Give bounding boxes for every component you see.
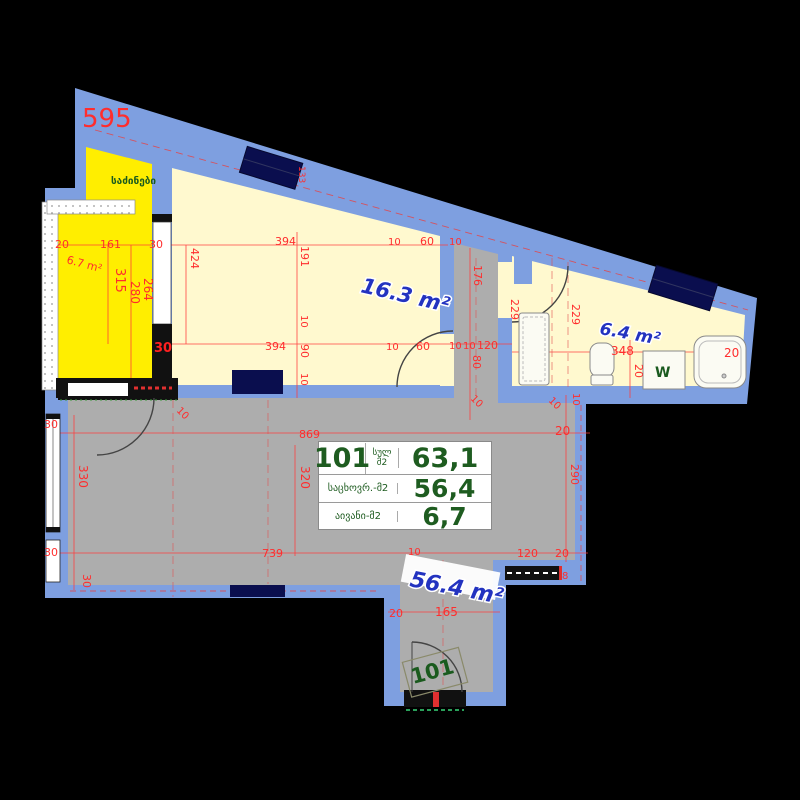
dimension-text: 30 — [154, 341, 172, 356]
dimension-text: 394 — [265, 340, 286, 353]
balcony-top-glazing — [47, 200, 135, 214]
dimension-text: 80 — [470, 355, 483, 369]
dimension-text: 10 — [298, 315, 309, 328]
dimension-text: 229 — [508, 299, 521, 320]
total-area-value: 63,1 — [399, 443, 491, 474]
living-area-value: 56,4 — [398, 474, 491, 503]
room-label: W — [655, 365, 670, 381]
dimension-text: 8 — [562, 571, 568, 582]
dimension-text: 10 — [570, 393, 581, 406]
dimension-text: 176 — [471, 265, 484, 286]
dimension-text: 30 — [149, 238, 163, 251]
dimension-text: 315 — [112, 268, 127, 293]
dimension-text: 290 — [568, 464, 581, 485]
dimension-text: 10 — [298, 373, 309, 386]
room-label: საძინები — [111, 175, 156, 187]
dimension-text: 394 — [275, 235, 296, 248]
apartment-number: 101 — [319, 443, 366, 474]
dimension-text: 424 — [188, 248, 201, 269]
dimension-text: 120 — [517, 547, 538, 560]
dimension-text: 30 — [44, 546, 58, 559]
dimension-text: 264 — [141, 278, 155, 301]
living-area-label: საცხოვრ.-მ2 — [319, 483, 398, 494]
dimension-text: 320 — [298, 466, 312, 489]
bedroom-doorway-panel — [232, 370, 283, 394]
bathroom-wall-stub — [514, 252, 532, 284]
dimension-text: 133 — [296, 166, 306, 183]
window-bottom — [230, 585, 285, 597]
dimension-text: 10 — [463, 341, 476, 352]
toilet-tank — [591, 375, 613, 385]
dimension-text: 161 — [100, 238, 121, 251]
balcony-door-sill — [56, 378, 178, 400]
dimension-text: 20 — [389, 607, 403, 620]
balcony-area-value: 6,7 — [398, 502, 491, 531]
dimension-text: 20 — [632, 364, 645, 378]
dimension-text: 595 — [82, 104, 132, 134]
total-area-unit-label: სულ მ2 — [366, 448, 399, 468]
dimension-text: 60 — [416, 340, 430, 353]
dimension-text: 229 — [569, 304, 582, 325]
radiator-marker — [505, 566, 562, 580]
dimension-text: 60 — [420, 235, 434, 248]
dimension-text: 20 — [724, 346, 739, 360]
dimension-text: 10 — [449, 237, 462, 248]
dimension-text: 30 — [80, 574, 93, 588]
floor-plan-page: 5952016130315280264424133394106019110901… — [0, 0, 800, 800]
dimension-text: 10 — [408, 547, 421, 558]
balcony-side-glazing — [42, 202, 58, 390]
dimension-text: 30 — [44, 418, 58, 431]
entrance-door-sill — [404, 690, 466, 710]
dimension-text: 348 — [611, 344, 634, 358]
dimension-text: 10 — [449, 341, 462, 352]
dimension-text: 165 — [435, 605, 458, 619]
dimension-text: 10 — [388, 237, 401, 248]
dimension-text: 330 — [76, 465, 90, 488]
dimension-text: 20 — [555, 424, 570, 438]
dimension-text: 20 — [55, 238, 69, 251]
dimension-text: 869 — [299, 428, 320, 441]
balcony-area-label: აივანი-მ2 — [319, 511, 398, 522]
dimension-text: 280 — [128, 281, 142, 304]
dimension-text: 20 — [555, 547, 569, 560]
apartment-info-table: 101 სულ მ2 63,1 საცხოვრ.-მ2 56,4 აივანი-… — [318, 441, 492, 530]
floor-plan-canvas: 5952016130315280264424133394106019110901… — [0, 0, 800, 800]
dimension-text: 191 — [298, 246, 311, 267]
dimension-text: 739 — [262, 547, 283, 560]
dimension-text: 120 — [477, 339, 498, 352]
dimension-text: 10 — [386, 342, 399, 353]
dimension-text: 90 — [298, 344, 311, 358]
